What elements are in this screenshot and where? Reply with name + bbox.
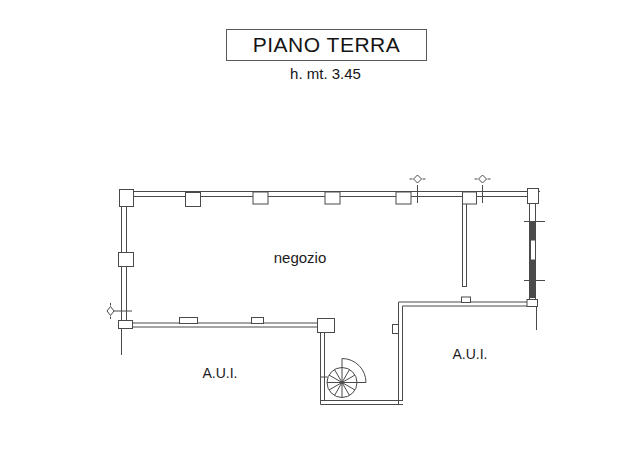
- wall-stub: [393, 325, 399, 334]
- wall-stub: [180, 318, 198, 324]
- pillar: [119, 253, 134, 267]
- floor-plan-page: PIANO TERRA h. mt. 3.45: [0, 0, 640, 452]
- partition-wall: [463, 204, 467, 287]
- corner-block: [527, 300, 538, 307]
- stair-enclosure: [321, 302, 404, 405]
- pillar: [463, 192, 477, 204]
- corner-pillar: [120, 190, 134, 207]
- room-label-negozio: negozio: [274, 249, 327, 266]
- corner-pillar: [318, 319, 335, 333]
- corner-pillar: [528, 189, 539, 204]
- spiral-staircase-icon: [321, 359, 366, 398]
- bottom-wall-west: [121, 318, 330, 328]
- room-label-aui-right: A.U.I.: [452, 346, 487, 362]
- pillar: [253, 192, 268, 204]
- left-wall: [122, 192, 127, 356]
- opening-marker-top1-icon: [410, 175, 426, 203]
- opening-marker-left-icon: [107, 303, 132, 319]
- wall-stub: [462, 297, 471, 303]
- right-wall: [524, 203, 545, 330]
- room-label-aui-left: A.U.I.: [202, 365, 237, 381]
- window-symbol: [524, 222, 545, 299]
- wall-stub: [252, 318, 264, 324]
- bottom-wall-east: [399, 297, 538, 307]
- floor-plan-drawing: negozio A.U.I. A.U.I.: [0, 0, 640, 452]
- pillar: [186, 193, 201, 207]
- pillar: [325, 192, 340, 204]
- corner-pillar: [119, 321, 133, 329]
- pillar: [396, 192, 411, 204]
